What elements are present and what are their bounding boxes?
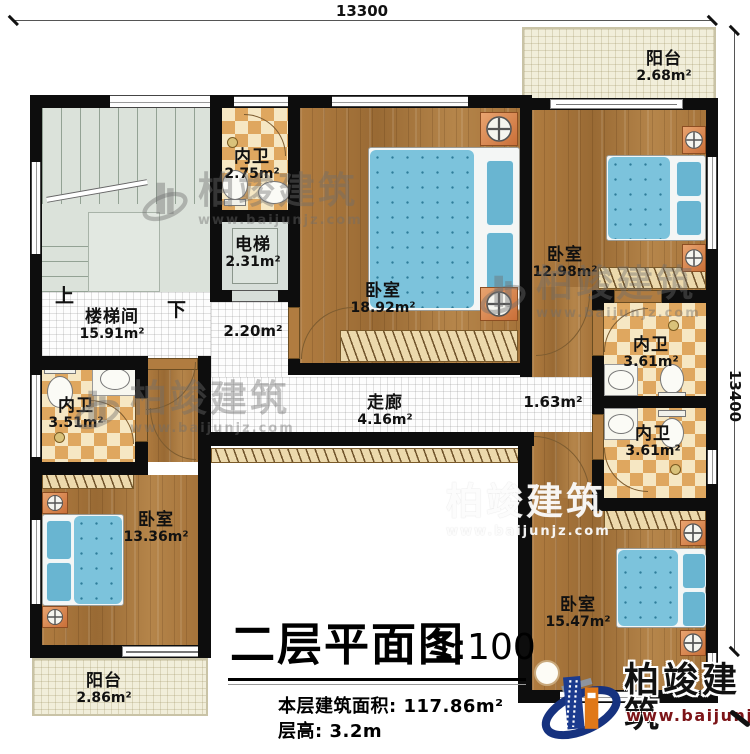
wardrobe-center [340,330,518,362]
title-underline [228,678,526,681]
door-bedroom-center [288,307,300,359]
sink-top [258,181,290,204]
bed-bottom-left-pillow-1 [46,520,72,560]
label-elevator: 电梯2.31m² [225,236,280,271]
toilet-rl-tank [658,410,686,417]
floor-height-text: 层高: 3.2m [278,717,382,743]
label-bedroom-bl: 卧室13.36m² [123,511,188,546]
nightstand-bl-2 [42,606,68,628]
bed-bottom-right-pillow-2 [682,591,706,627]
label-balcony-top: 阳台2.68m² [636,50,691,85]
stair-landing [88,212,160,292]
drain-ru-bath [668,320,679,331]
dimension-right-value: 13400 [726,366,744,426]
wall-nook-right [198,356,211,658]
elevator-door [232,290,278,302]
window-right-bedroom [707,157,717,249]
bed-center-pillow-1 [486,160,514,226]
label-bath-rl: 内卫3.61m² [625,425,680,460]
plan-scale: 1:100 [432,630,536,666]
label-bedroom-right: 卧室12.98m² [532,246,597,281]
nightstand-right-1 [682,126,706,154]
label-stairwell: 楼梯间15.91m² [79,308,144,343]
drain-rl-bath [670,464,681,475]
label-hall-right-area: 1.63m² [523,394,582,411]
window-top-bath [234,96,292,107]
wall-bedroom-center-right [520,95,532,377]
nightstand-bl-1 [42,492,68,514]
dimension-line-top [13,20,713,21]
bed-bottom-left-pillow-2 [46,562,72,602]
dimension-line-right [734,30,735,652]
sink-ru-basin [608,370,634,390]
lamp-icon [683,127,705,153]
brand-logo-icon [538,654,628,746]
lamp-icon [481,113,517,145]
window-right-bath [707,450,717,484]
corridor-hatch-strip [211,448,521,463]
wall-hall-bottom [30,356,146,370]
bed-right-mattress [608,157,670,239]
lamp-icon [481,288,517,320]
nightstand-br-1 [680,520,706,546]
stair-up-label: 上 [55,281,74,308]
drain-left-bath [54,432,65,443]
label-bath-ru: 内卫3.61m² [623,336,678,371]
label-bedroom-center: 卧室18.92m² [350,282,415,317]
door-bath-rl [592,414,604,460]
wall-bath-divider [604,396,718,408]
lamp-icon [43,607,67,627]
lamp-icon [683,245,705,271]
nightstand-center-1 [480,112,518,146]
wall-bath-elevator-divider [210,210,300,222]
label-bath-left: 内卫3.51m² [48,397,103,432]
title-underline-thin [228,684,526,685]
window-left-bedroom [31,520,41,604]
slider-balcony-top [550,99,683,109]
bed-bottom-right-pillow-1 [682,553,706,589]
wall-stair-right [210,95,222,302]
lamp-icon [681,521,705,545]
slider-balcony-bottom [122,646,204,657]
sink-left-basin [100,368,130,390]
wall-bath-rl-bottom [592,498,718,511]
window-left-bath [31,375,41,457]
wall-bath-left-bottom [30,462,148,475]
brand-building-icon [386,484,440,538]
label-balcony-bottom: 阳台2.86m² [76,672,131,707]
window-top-stair [110,95,210,108]
brand-logo: 柏竣建筑 www.baijunjz.com [538,650,750,750]
window-left-stair [31,162,41,254]
lamp-icon [43,493,67,513]
bed-right-pillow-1 [676,161,702,197]
bed-bottom-left-mattress [74,516,122,604]
door-bedroom-right [614,290,662,303]
label-corridor: 走廊4.16m² [357,394,412,429]
dimension-top-value: 13300 [330,2,394,20]
door-bath-ru [592,310,604,356]
wall-corridor-bottom [198,432,534,446]
nightstand-center-2 [480,287,518,321]
stair-down-label: 下 [167,295,186,322]
window-top-bedroom [332,96,468,107]
floor-area-text: 本层建筑面积: 117.86m² [278,692,504,718]
floor-plan-canvas: 阳台2.68m² 卧室12.98m² 内卫2.75m² 电梯2.31m² 楼梯间… [0,0,750,754]
nightstand-right-2 [682,244,706,272]
bed-right-pillow-2 [676,200,702,236]
plan-title: 二层平面图 [230,622,465,667]
label-bedroom-br: 卧室15.47m² [545,596,610,631]
label-hall-area: 2.20m² [223,323,282,340]
bed-bottom-right-mattress [618,550,678,626]
stair-treads-upper [42,108,210,204]
toilet-top-tank [224,199,246,206]
wall-bedroom-center-bottom [288,363,532,375]
label-bath-top: 内卫2.75m² [224,148,279,183]
